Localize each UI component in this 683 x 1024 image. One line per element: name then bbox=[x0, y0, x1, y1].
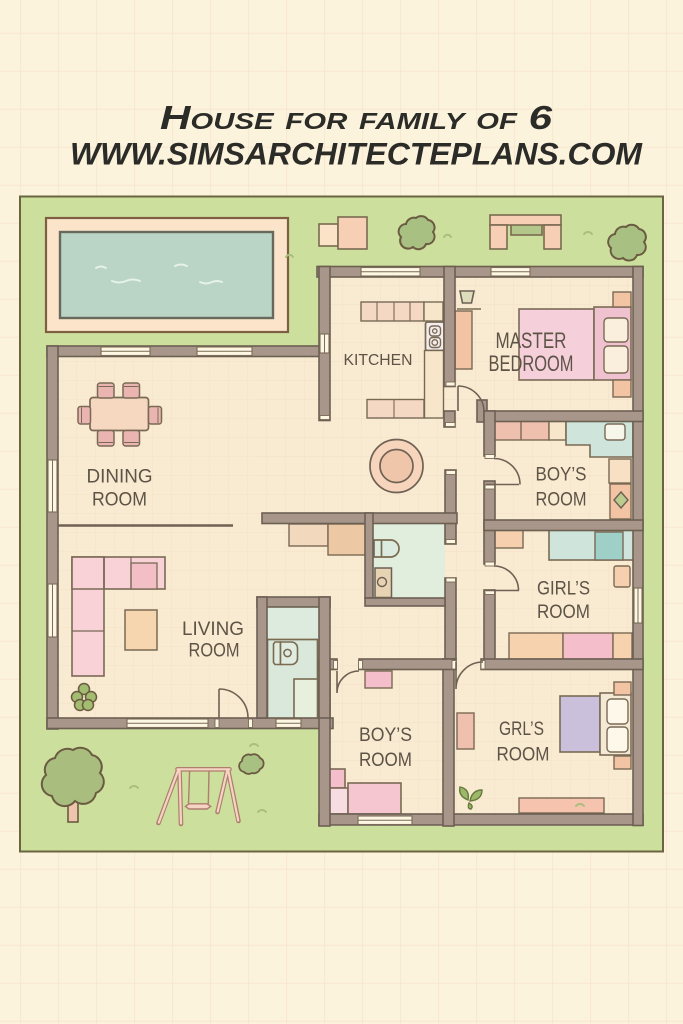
svg-text:ROOM: ROOM bbox=[189, 640, 240, 662]
svg-text:House for family of 6: House for family of 6 bbox=[160, 99, 553, 136]
svg-text:BEDROOM: BEDROOM bbox=[489, 351, 574, 376]
svg-text:MASTER: MASTER bbox=[496, 328, 567, 353]
svg-text:ROOM: ROOM bbox=[92, 489, 147, 511]
svg-text:BOY’S: BOY’S bbox=[359, 724, 412, 746]
svg-text:ROOM: ROOM bbox=[537, 601, 590, 623]
svg-text:GRL’S: GRL’S bbox=[499, 718, 544, 740]
svg-text:GIRL’S: GIRL’S bbox=[537, 578, 590, 600]
svg-text:WWW.SIMSARCHITECTEPLANS.COM: WWW.SIMSARCHITECTEPLANS.COM bbox=[70, 136, 643, 172]
svg-text:ROOM: ROOM bbox=[497, 744, 550, 766]
svg-text:BOY’S: BOY’S bbox=[536, 464, 587, 486]
svg-text:ROOM: ROOM bbox=[359, 749, 412, 771]
svg-text:DINING: DINING bbox=[87, 466, 153, 488]
svg-text:LIVING: LIVING bbox=[182, 618, 244, 640]
svg-text:ROOM: ROOM bbox=[536, 489, 587, 511]
svg-text:KITCHEN: KITCHEN bbox=[344, 352, 413, 369]
